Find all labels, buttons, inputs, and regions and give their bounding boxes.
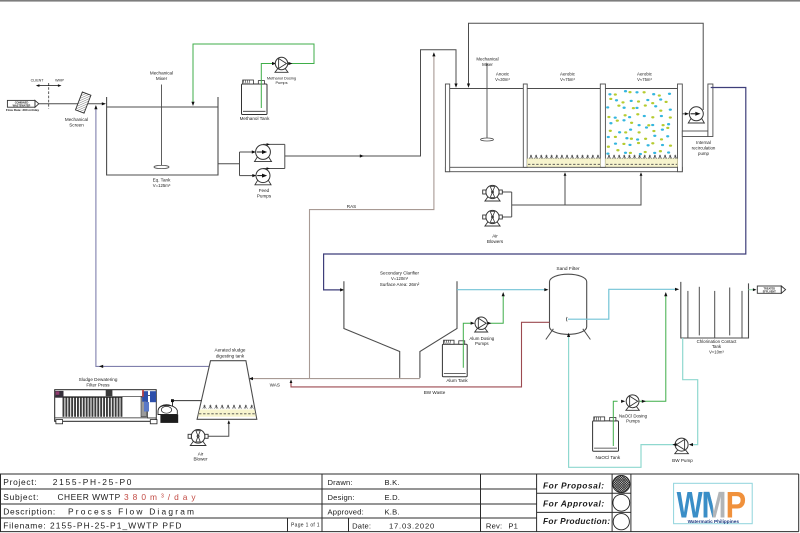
svg-text:CHEER WWTP: CHEER WWTP — [58, 492, 121, 502]
svg-text:V=120m³: V=120m³ — [391, 276, 409, 281]
svg-text:Rev:: Rev: — [486, 521, 502, 530]
svg-text:Description:: Description: — [3, 507, 56, 517]
svg-text:380m³/day: 380m³/day — [124, 492, 200, 502]
svg-text:Project:: Project: — [3, 477, 37, 487]
svg-text:pump: pump — [698, 151, 710, 156]
svg-text:BW Waste: BW Waste — [424, 390, 446, 395]
svg-text:Pumps: Pumps — [257, 193, 272, 198]
svg-text:Filename:: Filename: — [3, 520, 46, 530]
svg-text:E.D.: E.D. — [385, 493, 401, 502]
svg-text:digesting tank: digesting tank — [216, 353, 245, 358]
svg-text:Filter Press: Filter Press — [86, 383, 110, 388]
svg-text:Blowers: Blowers — [487, 239, 504, 244]
svg-text:Pumps: Pumps — [475, 341, 489, 346]
svg-text:Alum Tank: Alum Tank — [446, 378, 468, 383]
svg-text:Feed: Feed — [259, 188, 270, 193]
svg-text:WASTEWATER: WASTEWATER — [13, 104, 31, 107]
svg-text:WAS: WAS — [270, 383, 280, 388]
svg-text:Mechanical: Mechanical — [65, 117, 88, 122]
svg-text:Design:: Design: — [328, 493, 355, 502]
svg-text:V=125m³: V=125m³ — [153, 183, 171, 188]
svg-text:Subject:: Subject: — [3, 492, 39, 502]
svg-text:BW Pump: BW Pump — [672, 458, 693, 463]
svg-text:V≈10m³: V≈10m³ — [709, 350, 724, 355]
svg-text:B.K.: B.K. — [385, 478, 400, 487]
svg-text:Process Flow Diagram: Process Flow Diagram — [68, 507, 196, 517]
svg-text:Methanol Tank: Methanol Tank — [240, 116, 270, 121]
svg-text:K.B.: K.B. — [385, 508, 400, 517]
svg-text:For Production:: For Production: — [543, 516, 610, 526]
svg-text:Tank: Tank — [712, 344, 722, 349]
svg-text:V≈75m³: V≈75m³ — [560, 77, 575, 82]
svg-text:Sludge Dewatering: Sludge Dewatering — [79, 377, 118, 382]
svg-text:recirculation: recirculation — [692, 146, 716, 151]
svg-text:For Approval:: For Approval: — [543, 498, 605, 508]
svg-text:Chlorination Contact: Chlorination Contact — [697, 339, 738, 344]
svg-text:Anoxic: Anoxic — [496, 72, 510, 77]
svg-text:V≈75m³: V≈75m³ — [637, 77, 652, 82]
svg-text:Sand Filter: Sand Filter — [556, 266, 580, 272]
svg-text:Mixer: Mixer — [156, 76, 168, 81]
svg-text:2155-PH-25-P1_WWTP PFD: 2155-PH-25-P1_WWTP PFD — [50, 520, 183, 530]
svg-text:Screen: Screen — [69, 122, 84, 127]
svg-text:Secondary Clarifier: Secondary Clarifier — [380, 270, 420, 275]
svg-text:Aerobic: Aerobic — [637, 72, 653, 77]
svg-text:Page 1 of 1: Page 1 of 1 — [291, 522, 320, 528]
svg-text:Mechanical: Mechanical — [150, 71, 173, 76]
svg-text:Pumps: Pumps — [626, 419, 640, 424]
svg-text:Eq. Tank: Eq. Tank — [153, 178, 171, 183]
svg-text:EFFLUENT: EFFLUENT — [763, 290, 777, 293]
svg-text:2155-PH-25-P0: 2155-PH-25-P0 — [53, 477, 133, 487]
svg-text:Watermatic Philippines: Watermatic Philippines — [688, 519, 740, 524]
svg-text:Aerated sludge: Aerated sludge — [215, 348, 246, 353]
svg-text:Approved:: Approved: — [328, 508, 364, 517]
svg-text:Pumps: Pumps — [275, 80, 287, 85]
svg-text:Mixer: Mixer — [482, 62, 493, 67]
svg-text:Air: Air — [198, 451, 204, 456]
svg-text:17.03.2020: 17.03.2020 — [389, 521, 435, 530]
svg-text:Blower: Blower — [193, 457, 208, 462]
svg-text:Air: Air — [492, 234, 498, 239]
svg-text:Internal: Internal — [696, 140, 711, 145]
svg-text:RAS: RAS — [347, 204, 356, 209]
svg-text:Aerobic: Aerobic — [560, 72, 576, 77]
svg-text:Flow Rate: 380 m3/day: Flow Rate: 380 m3/day — [6, 108, 39, 112]
svg-text:CLIENT: CLIENT — [31, 79, 45, 83]
svg-text:For Proposal:: For Proposal: — [543, 480, 605, 490]
svg-text:NaOCl Tank: NaOCl Tank — [595, 455, 620, 460]
svg-text:V≈30m³: V≈30m³ — [495, 77, 510, 82]
svg-text:Mechanical: Mechanical — [476, 56, 498, 61]
svg-text:WMP: WMP — [55, 79, 64, 83]
svg-text:Surface Area: 26m²: Surface Area: 26m² — [380, 282, 420, 287]
svg-text:P1: P1 — [508, 521, 518, 530]
svg-text:Date:: Date: — [352, 521, 371, 530]
svg-text:Drawn:: Drawn: — [328, 478, 353, 487]
